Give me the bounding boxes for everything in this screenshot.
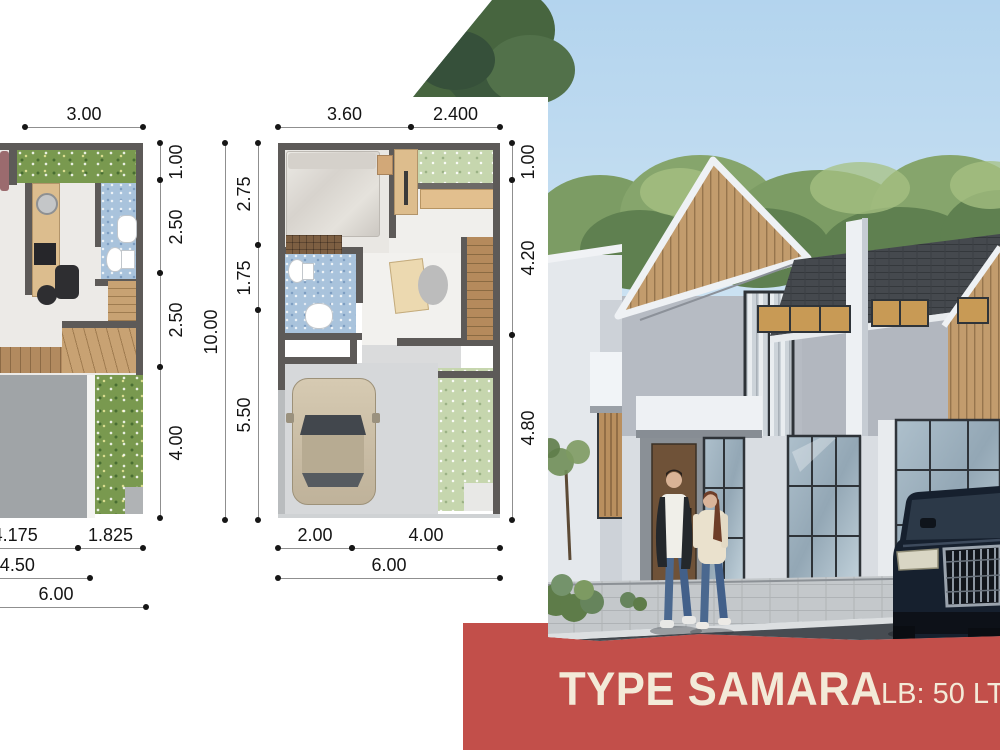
- dim-right-3: 4.80: [512, 335, 513, 520]
- dim-label: 3.00: [66, 105, 101, 123]
- dim-label: 2.00: [297, 526, 332, 544]
- dim-label: 1.00: [519, 144, 537, 179]
- dim-label: 2.50: [167, 302, 185, 337]
- floorplan-first: 3.00 1.00 2.50 2.50 4.00 4.175 1.825 4.5…: [0, 143, 146, 520]
- dim-right-2: 4.20: [512, 180, 513, 335]
- bar-stool: [37, 285, 57, 305]
- bathroom-sink: [117, 215, 137, 243]
- dim-label: 4.50: [0, 556, 35, 574]
- car-windshield: [300, 415, 366, 435]
- balcony-planter: [418, 150, 493, 183]
- dim-left-1: 2.75: [258, 143, 259, 245]
- dim-label: 4.00: [408, 526, 443, 544]
- car-mirror-right: [372, 413, 380, 423]
- dim-right-1: 1.00: [160, 143, 161, 180]
- study-chair: [418, 265, 448, 305]
- dining-chair: [0, 151, 9, 191]
- wood-deck: [0, 347, 62, 373]
- stairs-winder: [62, 328, 136, 373]
- floorplan-second: 3.60 2.400 2.75 1.75 5.50 10.00 1.00 4.2…: [278, 143, 500, 520]
- toilet-tank: [302, 263, 314, 280]
- garden-pad: [125, 487, 143, 514]
- dim-label: 6.00: [38, 585, 73, 603]
- dim-right-2: 2.50: [160, 180, 161, 273]
- dim-right-1: 1.00: [512, 143, 513, 180]
- stove: [34, 243, 56, 265]
- dim-label: 2.400: [433, 105, 478, 123]
- dim-bottom-1a: 4.175: [0, 548, 78, 549]
- dim-top-2: 2.400: [411, 127, 500, 128]
- dim-label: 1.825: [88, 526, 133, 544]
- garden-pad: [464, 483, 493, 511]
- dim-bottom-total: 6.00: [278, 578, 500, 579]
- car-roof: [302, 435, 364, 473]
- bed-pillows: [288, 153, 376, 169]
- dim-label: 2.50: [167, 209, 185, 244]
- dim-label: 4.175: [0, 526, 38, 544]
- dim-label: 3.60: [327, 105, 362, 123]
- dim-label: 4.80: [519, 410, 537, 445]
- dim-label: 6.00: [371, 556, 406, 574]
- walk-strip: [87, 375, 95, 518]
- dim-right-4: 4.00: [160, 367, 161, 518]
- dim-label: 1.75: [235, 260, 253, 295]
- dim-label: 2.75: [235, 176, 253, 211]
- dim-label: 10.00: [202, 309, 220, 354]
- garden-strip-top: [17, 150, 136, 183]
- dim-bottom-2: 4.50: [0, 578, 90, 579]
- cooking-pot: [36, 193, 58, 215]
- building-area-info: LB: 50 LT: [881, 678, 1000, 711]
- dim-bottom-1: 2.00: [278, 548, 352, 549]
- dim-top-1: 3.60: [278, 127, 411, 128]
- entry-canopy: [636, 396, 762, 434]
- bathroom-sink: [305, 303, 333, 329]
- hall-chair: [377, 155, 393, 175]
- dim-top: 3.00: [25, 127, 143, 128]
- headlight: [897, 549, 938, 570]
- driveway: [0, 375, 87, 518]
- dim-label: 5.50: [235, 397, 253, 432]
- dim-left-total: 10.00: [225, 143, 226, 520]
- type-banner: TYPE SAMARA LB: 50 LT: [463, 623, 1000, 750]
- dim-bottom-2: 4.00: [352, 548, 500, 549]
- bar-chair: [55, 265, 79, 299]
- dim-left-2: 1.75: [258, 245, 259, 310]
- stairs-upper: [108, 281, 136, 321]
- dim-bottom-total: 6.00: [0, 607, 146, 608]
- toilet-tank: [121, 250, 135, 269]
- dim-label: 4.00: [167, 425, 185, 460]
- dim-right-3: 2.50: [160, 273, 161, 367]
- dim-label: 4.20: [519, 240, 537, 275]
- dim-bottom-1b: 1.825: [78, 548, 143, 549]
- dim-label: 1.00: [167, 144, 185, 179]
- house-type-title: TYPE SAMARA: [559, 661, 882, 716]
- car-rear-window: [302, 473, 364, 487]
- staircase: [467, 237, 493, 340]
- dim-left-3: 5.50: [258, 310, 259, 520]
- hall-desk-slot: [404, 171, 408, 205]
- car-mirror-left: [286, 413, 294, 423]
- balcony-bench: [420, 189, 496, 209]
